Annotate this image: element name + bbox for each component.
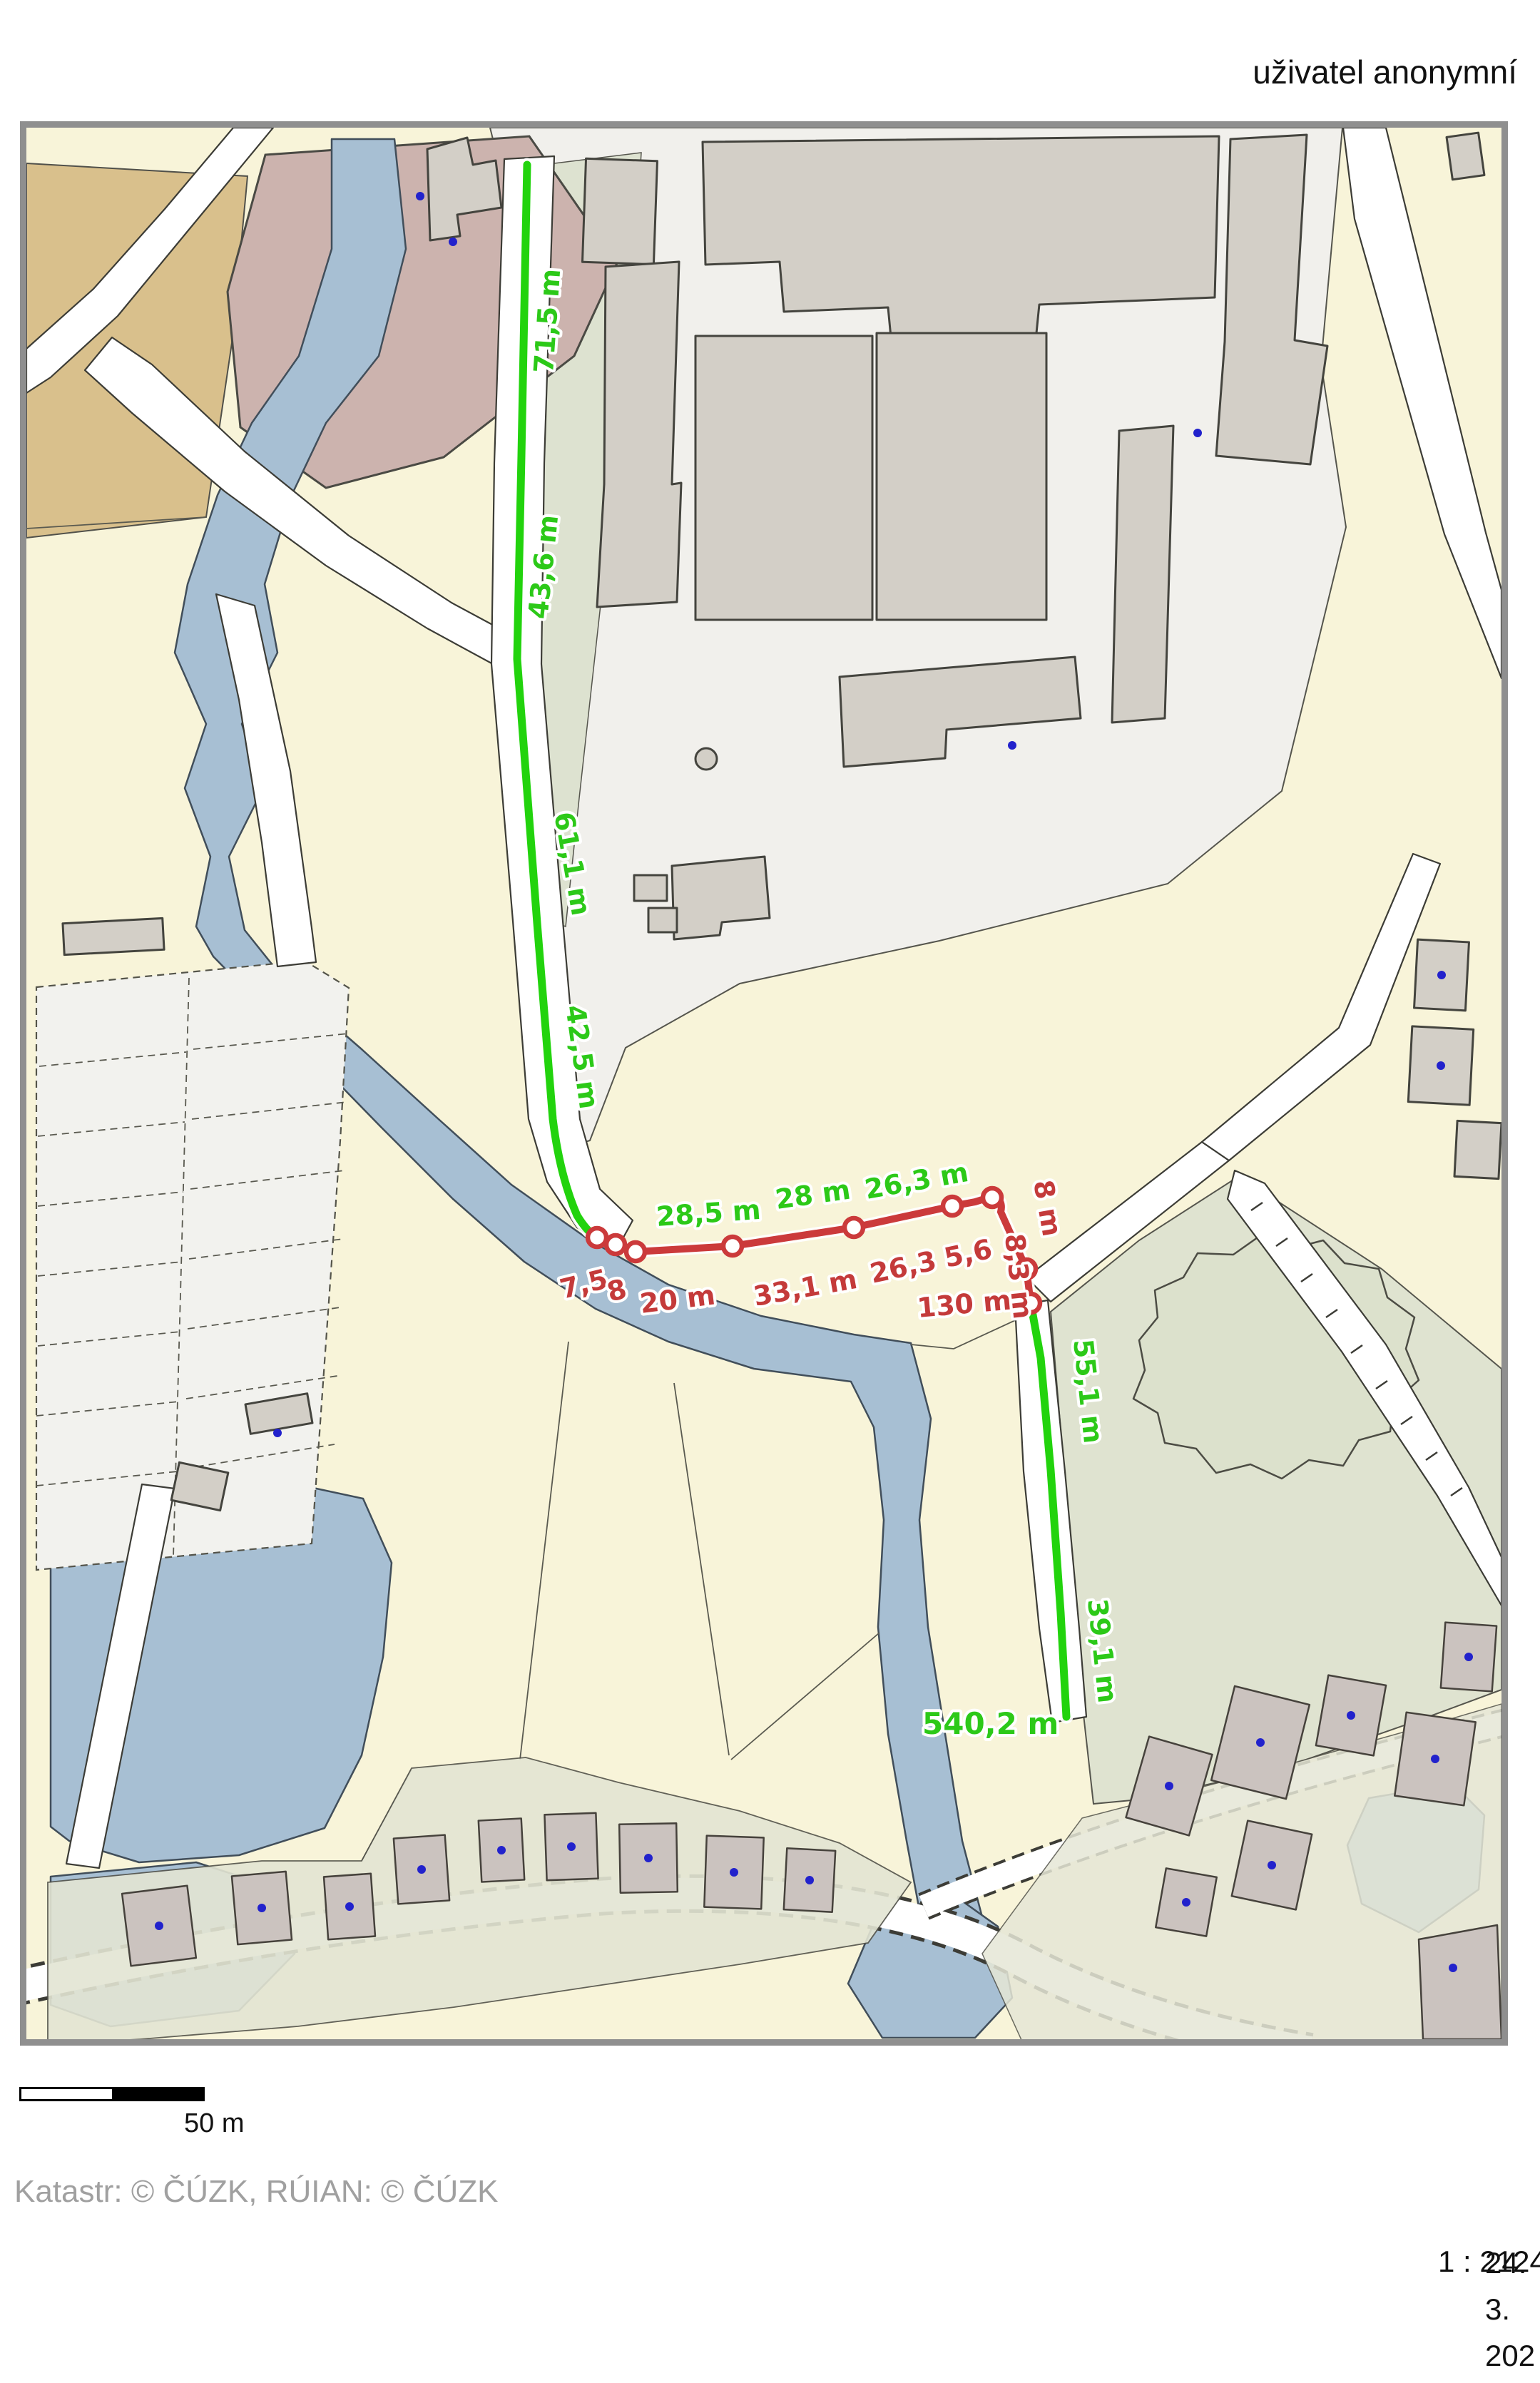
building-footprint	[634, 875, 667, 901]
building-footprint	[877, 333, 1046, 620]
building-footprint	[1112, 426, 1173, 723]
building-footprint	[597, 262, 681, 607]
building-footprint	[582, 158, 657, 264]
vertex-node	[845, 1218, 863, 1237]
page: { "header": { "user": "uživatel anonymní…	[0, 0, 1540, 2383]
attribution: Katastr: © ČÚZK, RÚIAN: © ČÚZK	[14, 2174, 498, 2210]
vertex-node	[943, 1197, 962, 1215]
vertex-node	[626, 1242, 645, 1261]
building-footprint	[1447, 133, 1484, 180]
scale-bar	[19, 2087, 205, 2101]
building-footprint	[63, 918, 164, 954]
print-date: 24. 3. 202	[1485, 2240, 1540, 2379]
round-structure	[695, 748, 717, 770]
vertex-node	[983, 1188, 1001, 1207]
map: 71,5 m 43,6 m 61,1 m 42,5 m 28,5 m 28 m …	[20, 121, 1508, 2046]
scale-bar-label: 50 m	[184, 2108, 244, 2139]
total-length-label: 540,2 m	[922, 1706, 1059, 1741]
map-canvas: 71,5 m 43,6 m 61,1 m 42,5 m 28,5 m 28 m …	[26, 128, 1501, 2039]
vertex-node	[606, 1235, 625, 1254]
vertex-node	[588, 1228, 606, 1247]
vertex-node	[723, 1237, 742, 1255]
building-footprint	[648, 908, 677, 932]
user-label: uživatel anonymní	[1253, 53, 1517, 91]
building-footprint	[695, 336, 872, 620]
building-footprint	[1454, 1121, 1501, 1178]
house-footprint	[1419, 1925, 1501, 2039]
scale-bar-filled	[112, 2089, 203, 2099]
